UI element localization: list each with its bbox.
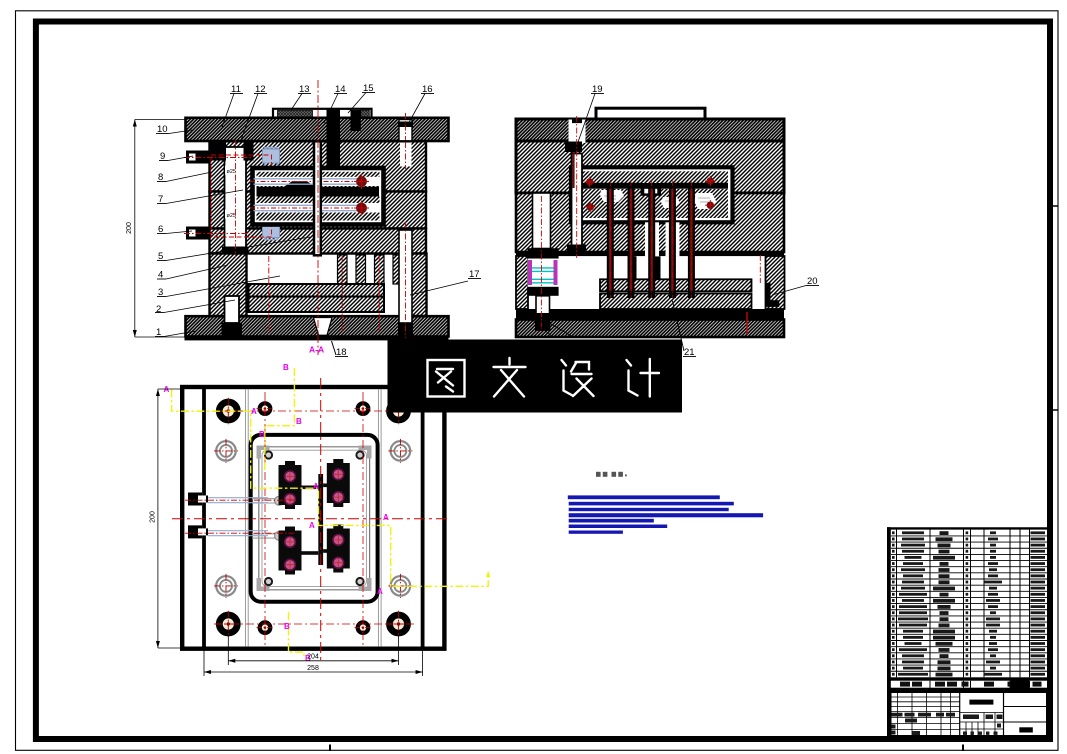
svg-text:2: 2 xyxy=(156,304,161,315)
svg-text:A: A xyxy=(377,587,383,596)
svg-text:200: 200 xyxy=(126,222,133,234)
svg-text:A: A xyxy=(313,482,319,491)
svg-text:B: B xyxy=(259,430,265,439)
svg-text:A: A xyxy=(164,385,170,394)
svg-text:258: 258 xyxy=(307,665,319,672)
svg-text:ø25: ø25 xyxy=(227,213,236,219)
svg-text:204: 204 xyxy=(307,654,319,661)
svg-text:B: B xyxy=(284,622,290,631)
svg-text:B: B xyxy=(283,363,289,372)
svg-text:B: B xyxy=(296,417,302,426)
svg-text:A-A: A-A xyxy=(309,345,324,355)
svg-text:ø25: ø25 xyxy=(227,169,236,175)
svg-text:A: A xyxy=(383,513,389,522)
svg-text:A: A xyxy=(251,407,257,416)
svg-text:A: A xyxy=(309,521,315,530)
svg-text:200: 200 xyxy=(150,511,157,523)
